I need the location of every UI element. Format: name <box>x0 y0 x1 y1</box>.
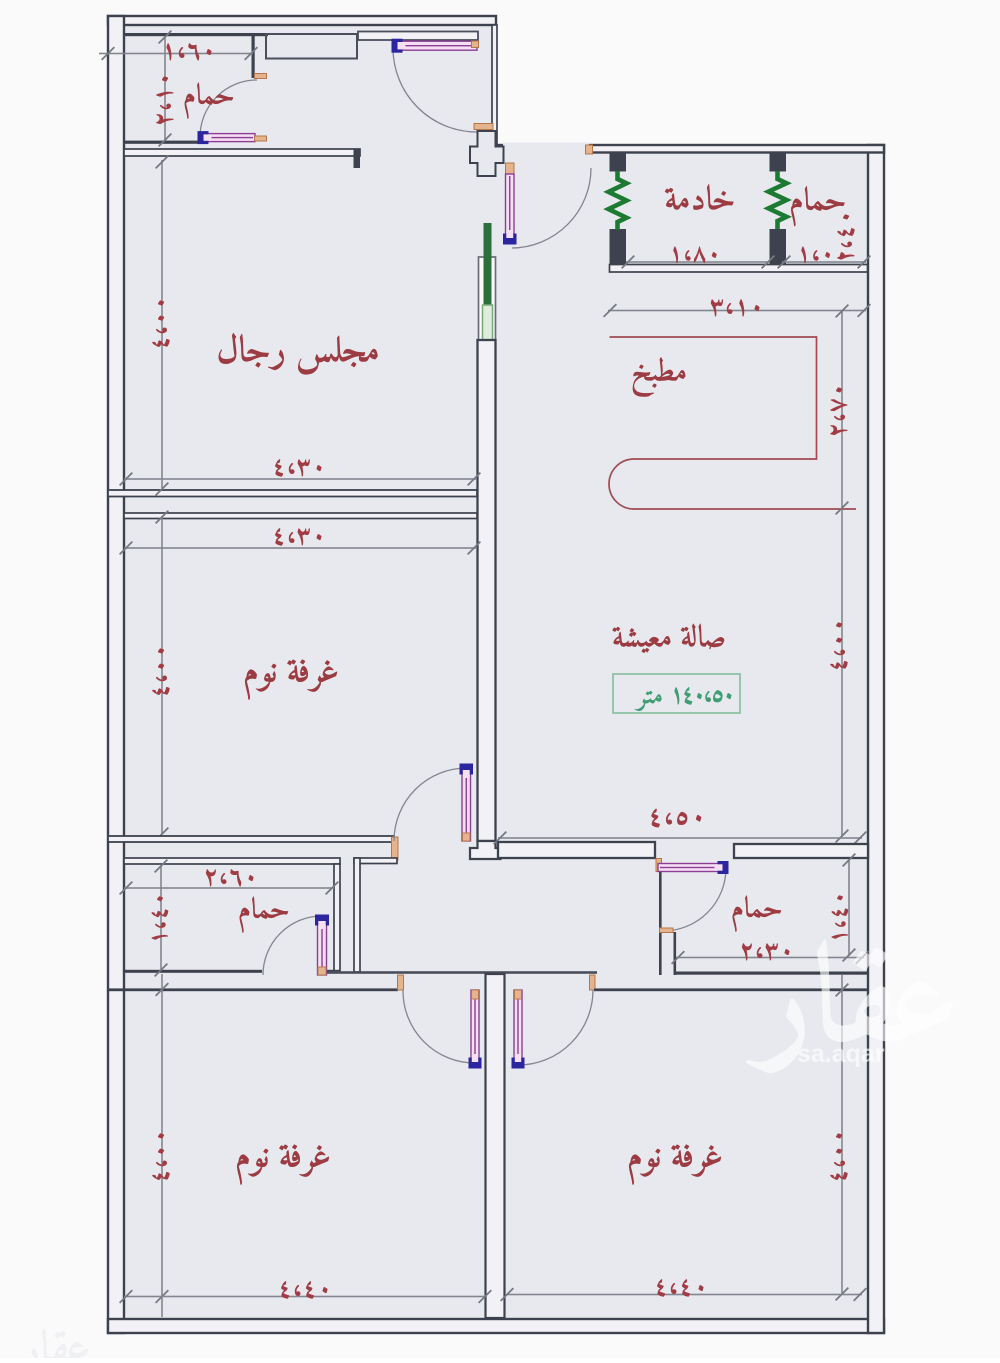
svg-text:sa.aqar: sa.aqar <box>797 1040 885 1068</box>
